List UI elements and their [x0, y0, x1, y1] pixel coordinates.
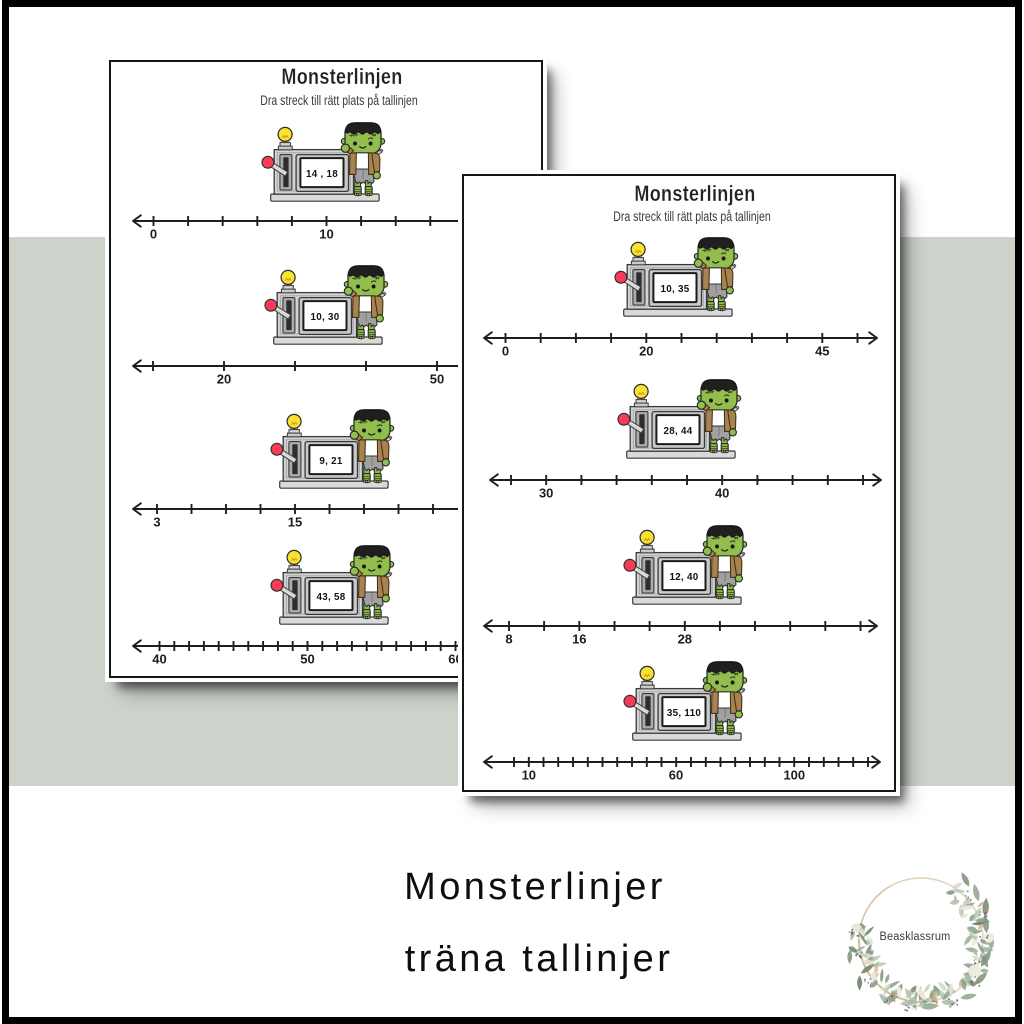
svg-text:28, 44: 28, 44: [663, 426, 692, 437]
svg-text:28: 28: [678, 631, 692, 646]
svg-text:8: 8: [505, 631, 512, 646]
svg-text:20: 20: [639, 343, 653, 358]
svg-text:10: 10: [522, 767, 536, 782]
svg-text:45: 45: [815, 343, 829, 358]
svg-text:60: 60: [669, 767, 683, 782]
svg-text:0: 0: [502, 343, 509, 358]
svg-text:16: 16: [572, 631, 586, 646]
svg-text:35, 110: 35, 110: [667, 708, 701, 719]
svg-text:100: 100: [783, 767, 805, 782]
svg-text:12, 40: 12, 40: [669, 572, 698, 583]
svg-text:30: 30: [539, 485, 553, 500]
svg-text:40: 40: [715, 485, 729, 500]
svg-text:10, 35: 10, 35: [660, 284, 689, 295]
